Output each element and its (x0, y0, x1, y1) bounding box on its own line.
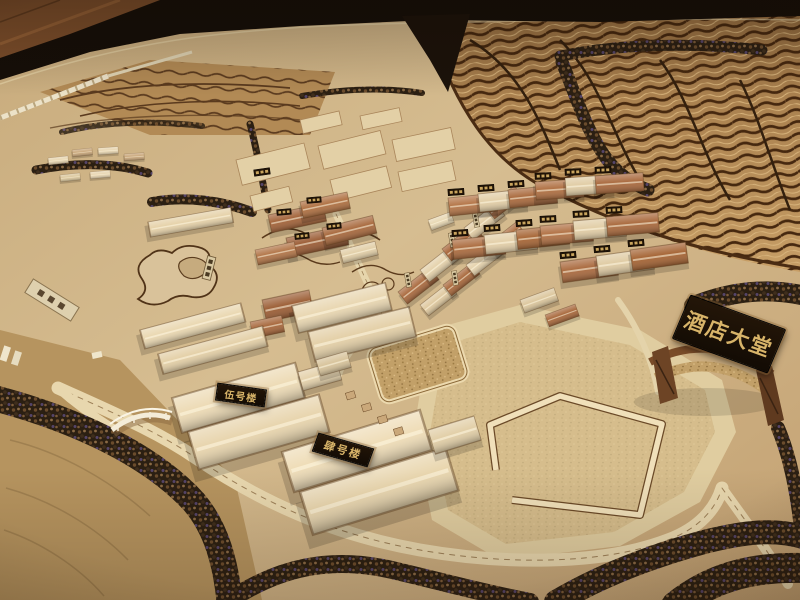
model-scene (0, 0, 800, 600)
model-photo: 伍号楼 肆号楼 酒店大堂 (0, 0, 800, 600)
building-5-sign-text: 伍号楼 (224, 385, 259, 404)
